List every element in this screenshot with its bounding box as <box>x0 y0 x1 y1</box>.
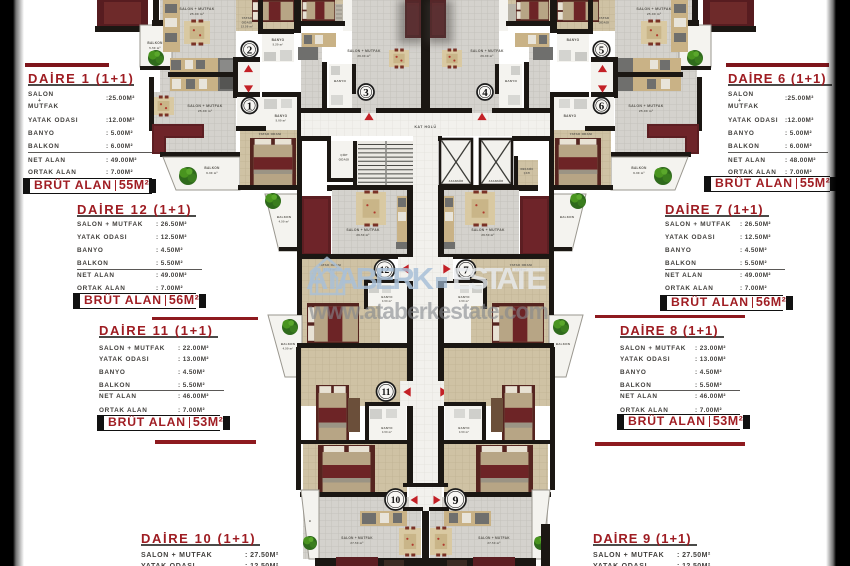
svg-text:BANYO: BANYO <box>458 426 470 430</box>
svg-text:4.50 m²: 4.50 m² <box>459 430 469 434</box>
svg-text:5.20 m²: 5.20 m² <box>273 43 284 47</box>
svg-text:26.50 m²: 26.50 m² <box>481 233 494 237</box>
svg-text:SALON + MUTFAK: SALON + MUTFAK <box>471 228 505 232</box>
svg-text:BALKON: BALKON <box>556 342 570 346</box>
svg-text:BANYO: BANYO <box>564 114 577 118</box>
svg-text:6.00 m²: 6.00 m² <box>206 171 217 175</box>
svg-text:BALKON: BALKON <box>560 215 574 219</box>
svg-text:ÇATI: ÇATI <box>524 172 530 175</box>
svg-text:ATABERK: ATABERK <box>306 261 435 296</box>
svg-text:10: 10 <box>391 496 401 506</box>
svg-text:26.00 m²: 26.00 m² <box>480 54 493 58</box>
svg-text:SALON + MUTFAK: SALON + MUTFAK <box>347 49 381 53</box>
svg-text:YATAK: YATAK <box>599 16 610 20</box>
svg-text:BANYO: BANYO <box>381 426 393 430</box>
svg-text:2: 2 <box>247 44 253 56</box>
svg-text:27.50 m²: 27.50 m² <box>487 541 500 545</box>
svg-text:4.50 m²: 4.50 m² <box>382 430 392 434</box>
svg-text:BANYO: BANYO <box>505 79 518 83</box>
svg-text:SALON + MUTFAK: SALON + MUTFAK <box>346 228 380 232</box>
svg-text:YATAK ODASI: YATAK ODASI <box>259 132 282 136</box>
svg-text:6: 6 <box>599 100 605 112</box>
svg-text:ESTATE: ESTATE <box>452 261 547 296</box>
svg-text:YATAK ODASI: YATAK ODASI <box>570 132 593 136</box>
svg-text:BALKON: BALKON <box>281 342 295 346</box>
svg-text:26.50 m²: 26.50 m² <box>356 233 369 237</box>
svg-text:25.00 m²: 25.00 m² <box>647 12 661 16</box>
svg-text:4.50 m²: 4.50 m² <box>283 347 294 351</box>
svg-text:1: 1 <box>247 100 253 112</box>
svg-text:BALKON: BALKON <box>631 166 647 170</box>
svg-text:ODASI: ODASI <box>599 21 610 25</box>
svg-text:4: 4 <box>482 87 488 99</box>
svg-text:9: 9 <box>453 493 459 507</box>
svg-text:SALON + MUTFAK: SALON + MUTFAK <box>179 7 214 11</box>
svg-text:BANYO: BANYO <box>334 79 347 83</box>
svg-text:SALON + MUTFAK: SALON + MUTFAK <box>470 49 504 53</box>
svg-text:5.00 m²: 5.00 m² <box>276 119 287 123</box>
svg-text:KAT HOLÜ: KAT HOLÜ <box>414 124 436 129</box>
svg-text:26.00 m²: 26.00 m² <box>357 54 370 58</box>
svg-text:ODASI: ODASI <box>242 21 253 25</box>
svg-text:6.00 m²: 6.00 m² <box>633 171 644 175</box>
svg-text:5: 5 <box>599 44 605 56</box>
svg-text:SALON + MUTFAK: SALON + MUTFAK <box>636 7 671 11</box>
svg-text:BANYO: BANYO <box>275 114 288 118</box>
svg-text:4.50 m²: 4.50 m² <box>279 220 290 224</box>
svg-text:MEKANİK: MEKANİK <box>521 168 534 171</box>
svg-text:SALON + MUTFAK: SALON + MUTFAK <box>187 104 222 108</box>
svg-text:B: B <box>309 519 311 523</box>
svg-text:BALKON: BALKON <box>277 215 291 219</box>
svg-text:25.00 m²: 25.00 m² <box>198 109 212 113</box>
svg-text:SALON + MUTFAK: SALON + MUTFAK <box>628 104 663 108</box>
svg-text:25.00 m²: 25.00 m² <box>639 109 653 113</box>
svg-text:5.50 m²: 5.50 m² <box>149 46 160 50</box>
svg-text:25.00 m²: 25.00 m² <box>190 12 204 16</box>
svg-text:3: 3 <box>363 87 369 99</box>
svg-text:SALON + MUTFAK: SALON + MUTFAK <box>341 536 373 540</box>
svg-text:BANYO: BANYO <box>272 38 285 42</box>
svg-text:SALON + MUTFAK: SALON + MUTFAK <box>478 536 510 540</box>
svg-text:ÇÖP: ÇÖP <box>340 152 347 157</box>
svg-text:BALKON: BALKON <box>147 41 163 45</box>
svg-text:12.50 m²: 12.50 m² <box>241 25 253 29</box>
svg-text:27.50 m²: 27.50 m² <box>350 541 363 545</box>
svg-text:11: 11 <box>382 388 391 398</box>
svg-text:YATAK: YATAK <box>242 16 253 20</box>
svg-text:BALKON: BALKON <box>204 166 220 170</box>
svg-text:ODASI: ODASI <box>339 158 350 162</box>
svg-text:www.ataberkestate.com: www.ataberkestate.com <box>308 298 549 324</box>
svg-text:BANYO: BANYO <box>567 38 580 42</box>
